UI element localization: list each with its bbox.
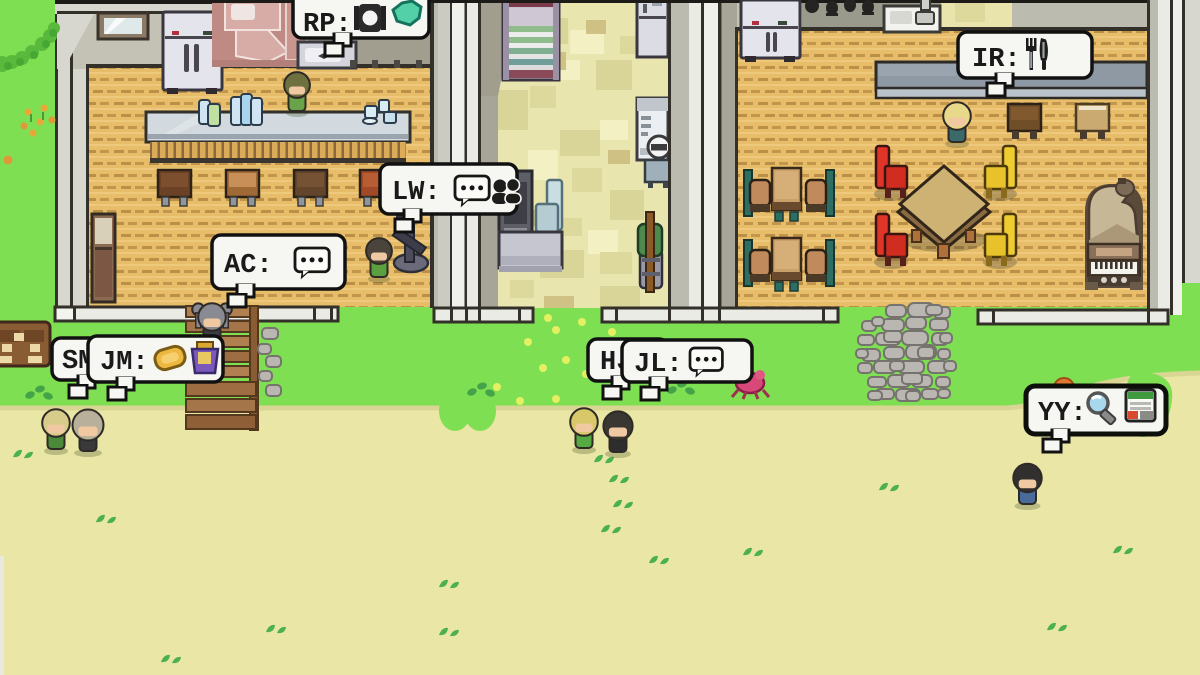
svg-text:AC:: AC: [224,251,273,281]
svg-text:JL:: JL: [634,350,683,380]
svg-text:YY:: YY: [1038,399,1087,429]
svg-text:IR:: IR: [972,45,1021,75]
svg-text:LW:: LW: [392,178,441,208]
svg-text:JM:: JM: [100,348,149,378]
